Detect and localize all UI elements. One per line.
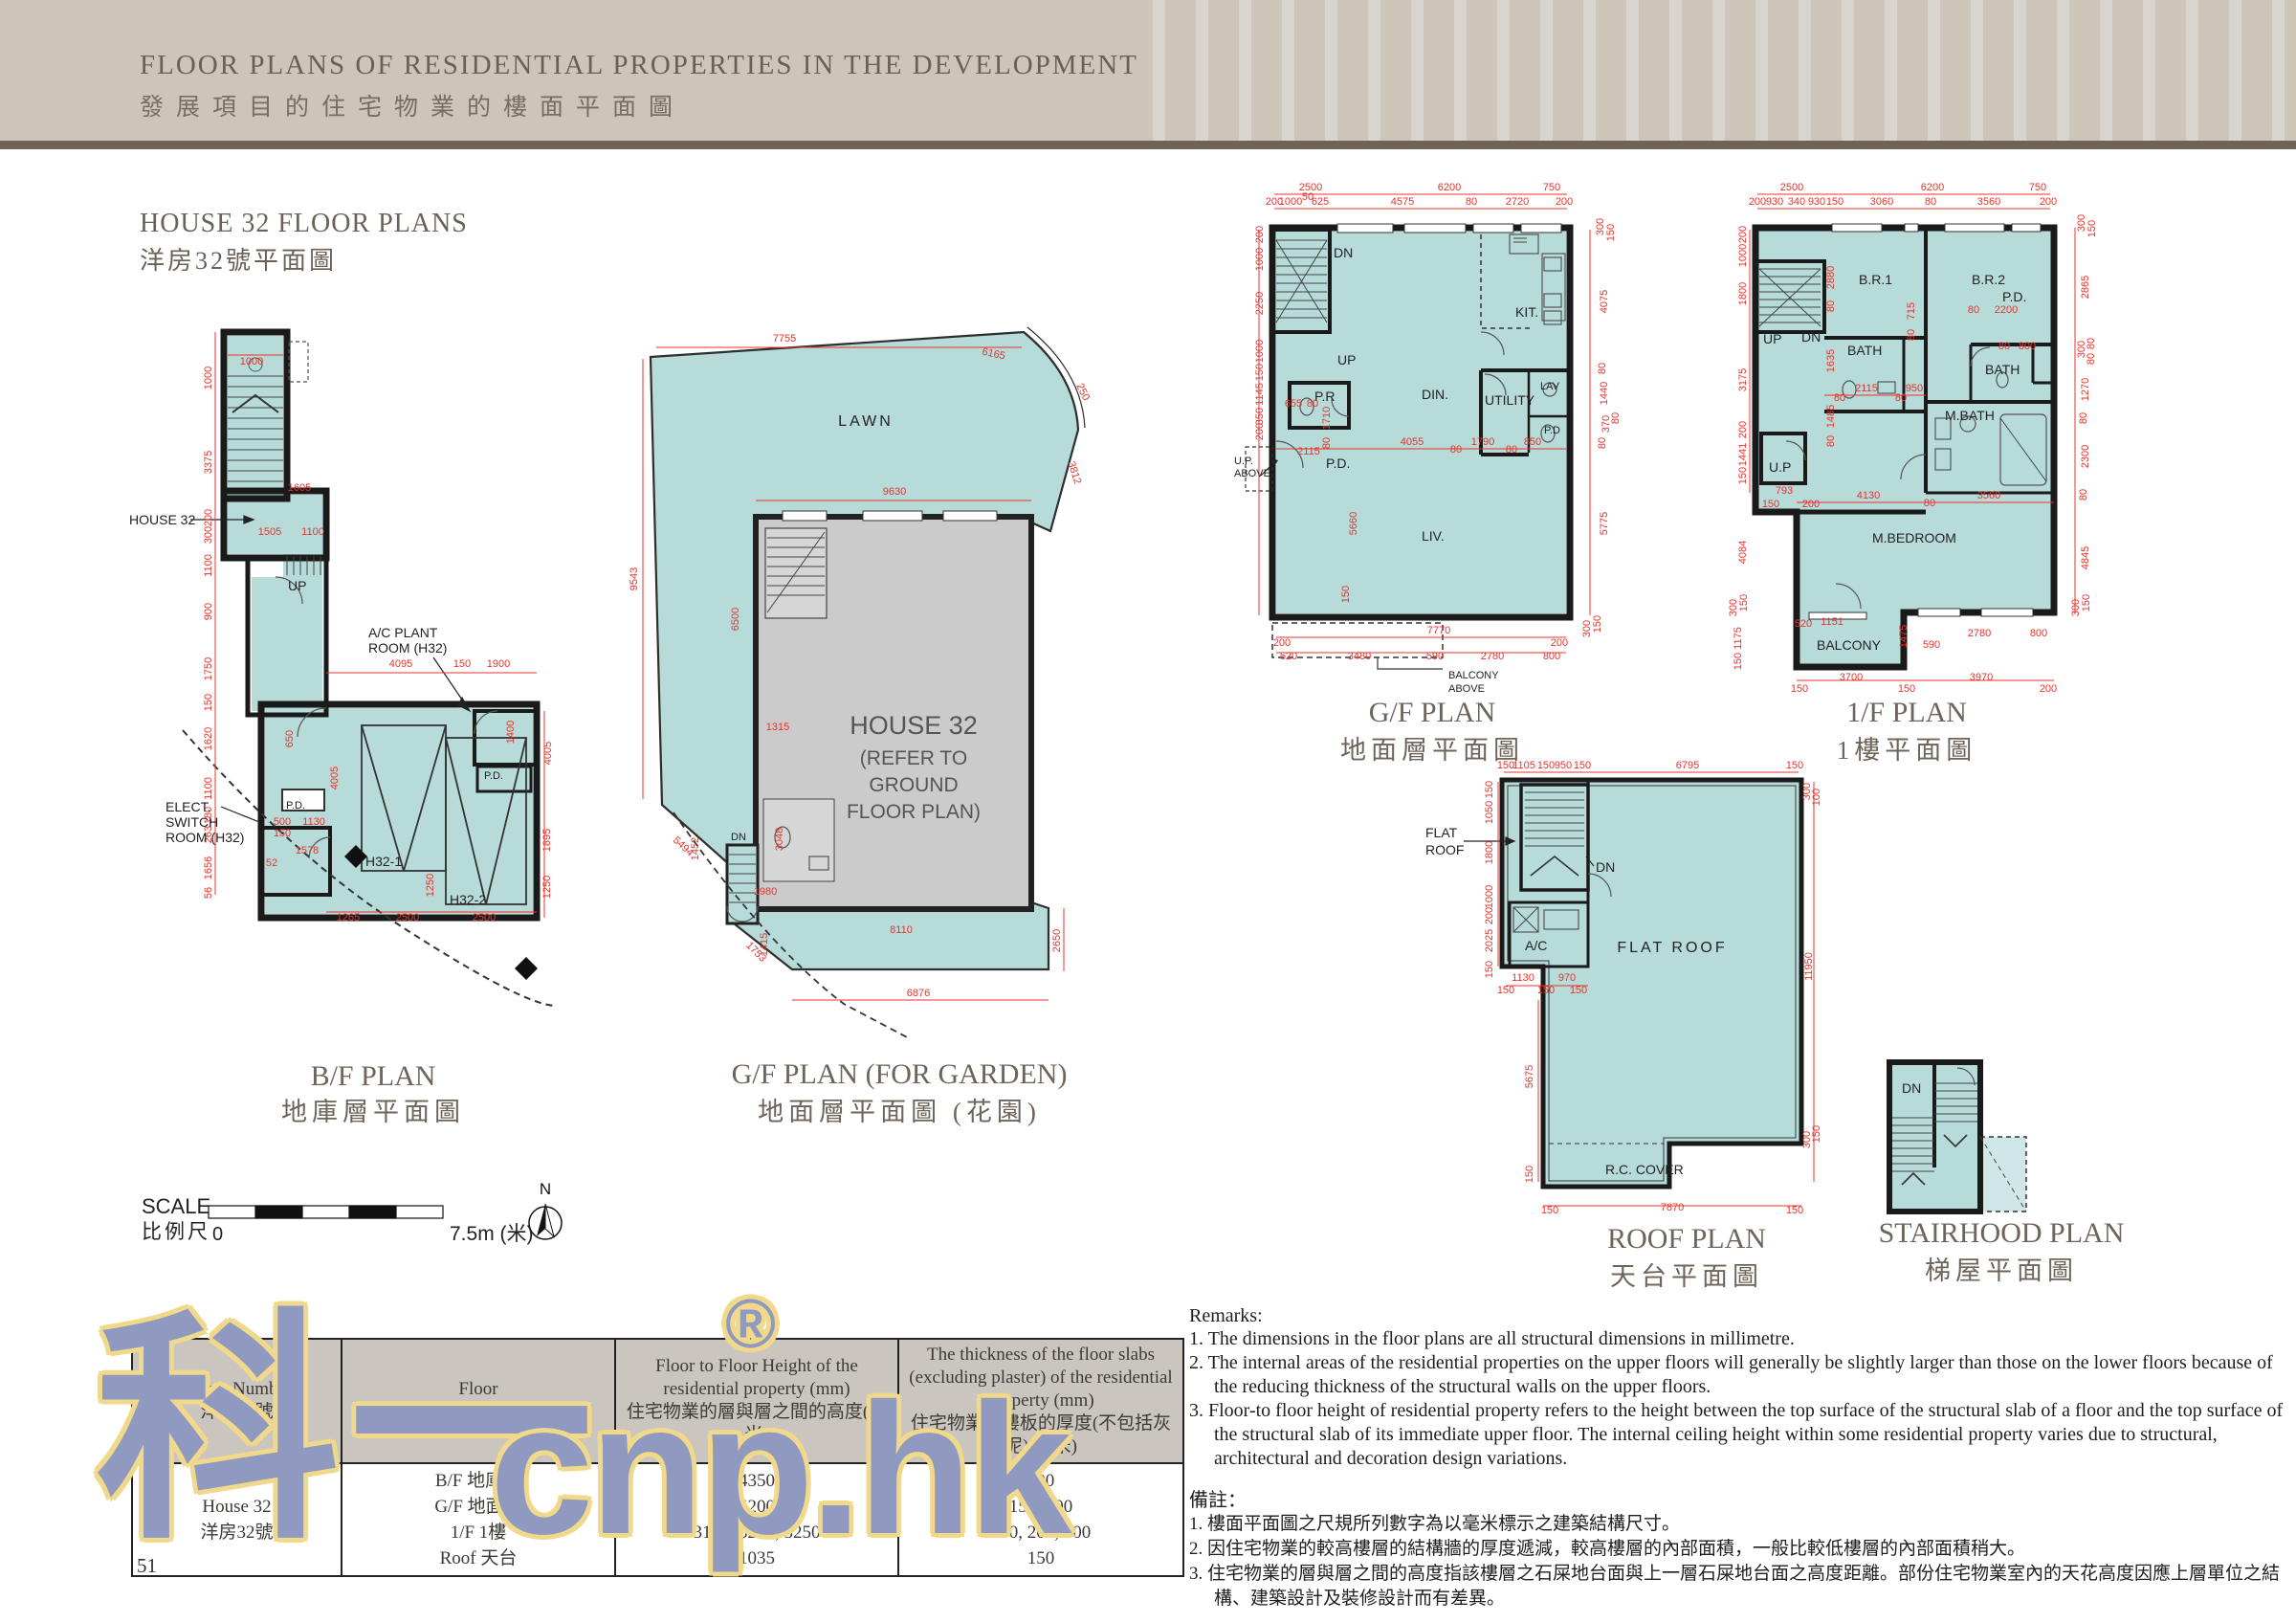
plan-label: 1635 bbox=[1825, 349, 1837, 372]
plan-label: 80 bbox=[1834, 392, 1845, 404]
cell-floors: B/F 地庫層G/F 地面層 1/F 1樓Roof 天台 bbox=[342, 1463, 615, 1576]
plan-label: 2880 bbox=[1825, 266, 1837, 289]
gf-garden-plan-figure: LAWNHOUSE 32(REFER TOGROUNDFLOOR PLAN)DN… bbox=[622, 301, 1100, 1124]
plan-label: 80 bbox=[1610, 412, 1622, 424]
plan-label: 80 bbox=[2078, 489, 2089, 500]
plan-label: UP bbox=[1763, 331, 1781, 346]
plan-label: 1750 bbox=[203, 657, 214, 680]
bf-caption-en: B/F PLAN bbox=[311, 1060, 436, 1093]
plan-label: U.P. bbox=[1234, 456, 1253, 467]
plan-label: 150 bbox=[1541, 1205, 1558, 1216]
plan-label: 6200 bbox=[1921, 182, 1944, 193]
plan-label: 4055 bbox=[1401, 436, 1424, 448]
plan-label: 3700 bbox=[1840, 672, 1863, 683]
plan-label: LAWN bbox=[838, 413, 894, 430]
plan-label: 80 bbox=[2086, 338, 2097, 349]
plan-label: 80 bbox=[1968, 304, 1979, 316]
plan-label: 1000 bbox=[1279, 196, 1302, 208]
plan-label: U.P bbox=[1769, 459, 1791, 475]
plan-label: 1100 bbox=[301, 526, 324, 538]
plan-label: 2500 bbox=[473, 912, 496, 923]
gfg-house-footprint bbox=[756, 511, 1031, 909]
remark-en-2: 2. The internal areas of the residential… bbox=[1189, 1351, 2294, 1399]
plan-label: 1475 bbox=[1898, 625, 1910, 648]
plan-label: DN bbox=[1596, 859, 1615, 875]
plan-label: B.R.2 bbox=[1972, 272, 2005, 287]
plan-label: 56 bbox=[203, 887, 214, 899]
plan-label: 150 bbox=[1497, 985, 1514, 996]
plan-label: 200 bbox=[203, 509, 214, 526]
plan-label: 2300 bbox=[2080, 445, 2091, 468]
plan-label: 80 bbox=[2078, 412, 2089, 424]
plan-label: DN bbox=[731, 832, 746, 843]
plan-label: 1900 bbox=[487, 658, 510, 670]
roof-caption-zh: 天台平面圖 bbox=[1610, 1256, 1763, 1293]
plan-label: 850 bbox=[1524, 436, 1541, 448]
plan-label: 500 bbox=[274, 816, 291, 828]
plan-label: 7755 bbox=[773, 333, 796, 345]
plan-label: 590 bbox=[1426, 651, 1444, 662]
plan-label: 150 bbox=[1537, 760, 1555, 771]
plan-label: BALCONY bbox=[1448, 670, 1499, 681]
remarks-title-zh: 備註： bbox=[1189, 1484, 2294, 1512]
plan-label: 100 bbox=[1811, 789, 1822, 806]
plan-label: 8110 bbox=[890, 924, 913, 936]
plan-label: 1505 bbox=[258, 526, 281, 538]
plan-label: 80 bbox=[1307, 398, 1318, 410]
page-number: 51 bbox=[137, 1554, 157, 1578]
plan-label: 1000 bbox=[1737, 244, 1749, 267]
plan-label: 150 bbox=[1898, 683, 1915, 695]
plan-label: 4075 bbox=[1599, 290, 1610, 313]
plan-label: 200 bbox=[1556, 196, 1573, 208]
col-floor-height: Floor to Floor Height of the residential… bbox=[615, 1339, 898, 1463]
plan-label: 150 bbox=[2081, 594, 2092, 611]
plan-label: 80 bbox=[1321, 437, 1333, 449]
plan-label: A/C bbox=[1525, 938, 1547, 953]
plan-label: 9630 bbox=[883, 486, 906, 498]
plan-label: 3060 bbox=[1870, 196, 1893, 208]
plan-label: P.D. bbox=[484, 770, 503, 782]
plan-label: 150 bbox=[1786, 1205, 1803, 1216]
plan-label: 3480 bbox=[1348, 651, 1371, 662]
plan-label: 1656 bbox=[203, 856, 214, 879]
plan-label: 4005 bbox=[329, 767, 341, 789]
plan-label: 1050 bbox=[1484, 801, 1495, 824]
header-divider bbox=[0, 141, 2296, 149]
plan-label: ROOM (H32) bbox=[368, 640, 447, 656]
plan-label: 2025 bbox=[1484, 929, 1495, 952]
page-title-zh: 發展項目的住宅物業的樓面平面圖 bbox=[140, 88, 685, 122]
plan-label: 3812 bbox=[1065, 460, 1083, 486]
plan-label: 1710 bbox=[1321, 407, 1333, 430]
plan-label: 2865 bbox=[2080, 276, 2091, 299]
plan-label: 80 bbox=[2086, 353, 2097, 365]
plan-label: 150 bbox=[1574, 760, 1591, 771]
plan-label: 1441 bbox=[1737, 443, 1749, 466]
plan-label: 3048 bbox=[774, 828, 785, 851]
plan-label: 800 bbox=[2019, 341, 2036, 352]
plan-label: 150 bbox=[203, 694, 214, 711]
table-header-row: House Number洋房編號 Floor樓層 Floor to Floor … bbox=[132, 1339, 1183, 1463]
plan-label: 625 bbox=[1312, 196, 1329, 208]
plan-label: 1415 bbox=[759, 933, 770, 956]
plan-label: 7770 bbox=[1427, 625, 1450, 636]
plan-label: 80 bbox=[1998, 341, 2010, 352]
plan-label: 80 bbox=[1466, 196, 1477, 208]
stairhood-caption-zh: 梯屋平面圖 bbox=[1925, 1250, 2078, 1287]
first-floor-plan-figure: 2500620075020093034093015030608035602002… bbox=[1717, 177, 2138, 761]
plan-label: 930 bbox=[1808, 196, 1825, 208]
plan-label: BALCONY bbox=[1817, 637, 1882, 653]
plan-label: P.D bbox=[1544, 425, 1560, 436]
plan-label: 4845 bbox=[2080, 546, 2091, 569]
plan-label: ELECT. bbox=[166, 799, 210, 814]
plan-label: 80 bbox=[1825, 300, 1837, 312]
f1-caption-en: 1/F PLAN bbox=[1846, 697, 1967, 729]
plan-label: 150 bbox=[1762, 499, 1779, 510]
plan-label: 520 bbox=[1795, 618, 1812, 630]
scale-max: 7.5m (米) bbox=[450, 1223, 534, 1245]
plan-label: 150 bbox=[1791, 683, 1808, 695]
plan-label: P.D. bbox=[2002, 289, 2026, 304]
plan-label: 2650 bbox=[1051, 929, 1063, 952]
scale-label-en: SCALE bbox=[142, 1194, 210, 1218]
remark-en-1: 1. The dimensions in the floor plans are… bbox=[1189, 1327, 2294, 1351]
plan-label: 1980 bbox=[754, 886, 777, 898]
scale-zero: 0 bbox=[212, 1224, 223, 1245]
plan-label: 9543 bbox=[629, 567, 640, 590]
plan-label: 2500 bbox=[1780, 182, 1803, 193]
plan-label: 200 bbox=[2040, 683, 2057, 695]
gfg-stair-annex bbox=[727, 845, 758, 923]
plan-label: 6876 bbox=[907, 988, 930, 999]
plan-label: HOUSE 32 bbox=[129, 512, 195, 527]
plan-label: ABOVE bbox=[1234, 468, 1270, 479]
plan-label: 340 bbox=[1788, 196, 1805, 208]
plan-label: 1250 bbox=[425, 874, 436, 897]
plan-label: 150 bbox=[1484, 961, 1495, 978]
plan-label: 5675 bbox=[1524, 1065, 1535, 1088]
plan-label: 200 bbox=[1749, 196, 1766, 208]
plan-label: UP bbox=[288, 578, 306, 593]
plan-label: 800 bbox=[2030, 628, 2047, 639]
plan-label: 1000 bbox=[1484, 885, 1495, 908]
plan-label: H32-2 bbox=[450, 892, 486, 907]
plan-label: 2720 bbox=[1506, 196, 1529, 208]
plan-label: 1895 bbox=[541, 829, 553, 852]
plan-label: 1100 bbox=[203, 777, 214, 800]
plan-label: 1315 bbox=[766, 722, 789, 733]
plan-label: FLOOR PLAN) bbox=[847, 801, 981, 823]
plan-label: 4005 bbox=[542, 742, 554, 765]
plan-label: 150 bbox=[1786, 760, 1803, 771]
plan-label: FLAT bbox=[1425, 825, 1458, 840]
plan-label: 150 bbox=[1811, 1125, 1822, 1143]
plan-label: 3560 bbox=[1977, 490, 2000, 501]
plan-label: 150 bbox=[453, 658, 471, 670]
plan-label: 2500 bbox=[396, 912, 419, 923]
bf-caption-zh: 地庫層平面圖 bbox=[281, 1091, 465, 1128]
plan-label: 1105 bbox=[1512, 760, 1535, 771]
remark-en-3: 3. Floor-to floor height of residential … bbox=[1189, 1399, 2294, 1471]
plan-label: 1265 bbox=[337, 912, 360, 923]
scale-bar-segments bbox=[209, 1206, 443, 1218]
plan-label: 150 bbox=[1733, 653, 1744, 670]
plan-label: 150 bbox=[1537, 985, 1555, 996]
remark-zh-2: 2. 因住宅物業的較高樓層的結構牆的厚度遞減，較高樓層的內部面積，一般比較低樓層… bbox=[1189, 1537, 2294, 1562]
plan-label: UP bbox=[1337, 352, 1356, 367]
plan-label: 200 bbox=[1802, 499, 1820, 510]
plan-label: 11950 bbox=[1803, 952, 1815, 981]
brochure-page: { "header": { "title_en": "FLOOR PLANS O… bbox=[0, 0, 2296, 1623]
plan-label: 150 bbox=[1484, 781, 1495, 798]
plan-label: LIV. bbox=[1422, 528, 1445, 544]
plan-label: 590 bbox=[1923, 639, 1940, 651]
plan-label: DN bbox=[1902, 1080, 1921, 1096]
floor-height-table: House Number洋房編號 Floor樓層 Floor to Floor … bbox=[131, 1338, 1184, 1577]
plan-label: P.D. bbox=[1326, 456, 1350, 471]
plan-label: 80 bbox=[1597, 363, 1608, 374]
plan-label: 1605 bbox=[288, 482, 311, 494]
plan-label: 750 bbox=[2029, 182, 2046, 193]
plan-label: 150 bbox=[1592, 615, 1603, 633]
cell-thickness: 200150, 200 150, 200, 300150 bbox=[898, 1463, 1183, 1576]
plan-label: 800 bbox=[1543, 651, 1560, 662]
plan-label: 200 bbox=[1484, 907, 1495, 924]
plan-label: BATH bbox=[1985, 362, 2020, 377]
plan-label: 4084 bbox=[1737, 541, 1749, 564]
plan-label: 1452 bbox=[690, 837, 701, 860]
plan-label: 1250 bbox=[541, 876, 553, 899]
plan-label: 200 bbox=[1254, 423, 1266, 440]
col-house-number: House Number洋房編號 bbox=[132, 1339, 342, 1463]
plan-label: R.C. COVER bbox=[1605, 1162, 1684, 1177]
plan-label: ROOM (H32) bbox=[166, 830, 244, 845]
plan-label: P.D. bbox=[286, 800, 305, 811]
plan-label: B.R.1 bbox=[1859, 272, 1892, 287]
f1-caption-zh: 1樓平面圖 bbox=[1837, 729, 1977, 767]
plan-label: 1175 bbox=[1733, 627, 1744, 650]
header-stripe-pattern bbox=[1153, 0, 2296, 141]
table-row: House 32洋房32號 B/F 地庫層G/F 地面層 1/F 1樓Roof … bbox=[132, 1463, 1183, 1576]
plan-label: 80 bbox=[1506, 444, 1517, 456]
remarks-block: Remarks: 1. The dimensions in the floor … bbox=[1189, 1305, 2294, 1612]
plan-label: M.BEDROOM bbox=[1872, 530, 1956, 545]
plan-label: 7870 bbox=[1661, 1202, 1684, 1213]
plan-label: 1620 bbox=[203, 727, 214, 750]
plan-label: 80 bbox=[1450, 444, 1462, 456]
page-title-en: FLOOR PLANS OF RESIDENTIAL PROPERTIES IN… bbox=[140, 50, 1138, 81]
plan-label: 1000 bbox=[1254, 340, 1266, 363]
remark-zh-1: 1. 樓面平面圖之尺規所列數字為以毫米標示之建築結構尺寸。 bbox=[1189, 1512, 2294, 1537]
roof-floor-area bbox=[1502, 780, 1801, 1187]
plan-label: M.BATH bbox=[1945, 408, 1995, 423]
page-header: FLOOR PLANS OF RESIDENTIAL PROPERTIES IN… bbox=[0, 0, 2296, 141]
plan-label: 150 bbox=[1826, 196, 1843, 208]
stairhood-caption-en: STAIRHOOD PLAN bbox=[1879, 1217, 2125, 1250]
plan-label: 150 bbox=[1605, 224, 1617, 241]
plan-label: 200 bbox=[1737, 421, 1749, 438]
plan-label: ROOF bbox=[1425, 842, 1464, 857]
plan-label: 150 bbox=[1340, 586, 1352, 603]
plan-label: H32-1 bbox=[365, 854, 402, 869]
plan-label: 930 bbox=[1766, 196, 1783, 208]
plan-label: 3375 bbox=[203, 451, 214, 474]
plan-label: FLAT ROOF bbox=[1617, 940, 1727, 956]
plan-label: LAV bbox=[1540, 381, 1560, 392]
plan-label: 2250 bbox=[1254, 292, 1266, 315]
plan-label: 80 bbox=[1597, 437, 1608, 449]
scale-bar: SCALE 比例尺 0 7.5m (米) N bbox=[134, 1179, 593, 1284]
plan-label: A/C PLANT bbox=[368, 625, 438, 640]
plan-label: 4095 bbox=[389, 658, 412, 670]
plan-label: 750 bbox=[1543, 182, 1560, 193]
plan-label: 80 bbox=[1925, 196, 1936, 208]
plan-label: 200 bbox=[1273, 637, 1291, 649]
plan-label: 655 bbox=[1285, 398, 1302, 410]
section-title-zh: 洋房32號平面圖 bbox=[140, 241, 337, 277]
col-floor: Floor樓層 bbox=[342, 1339, 615, 1463]
section-title-en: HOUSE 32 FLOOR PLANS bbox=[140, 209, 468, 239]
plan-label: UTILITY bbox=[1485, 392, 1535, 408]
plan-label: 300 bbox=[203, 526, 214, 544]
plan-label: 2780 bbox=[1968, 628, 1991, 639]
plan-label: 5660 bbox=[1348, 512, 1359, 535]
plan-label: 1440 bbox=[1599, 382, 1610, 405]
plan-label: 900 bbox=[203, 603, 214, 620]
plan-label: 350 bbox=[1254, 408, 1266, 425]
plan-label: ABOVE bbox=[1448, 683, 1485, 695]
plan-label: 1800 bbox=[1737, 282, 1749, 305]
plan-label: 150 bbox=[2086, 220, 2098, 237]
plan-label: 200 bbox=[1551, 637, 1568, 649]
plan-label: 1145 bbox=[1254, 383, 1266, 406]
plan-label: 1130 bbox=[1512, 972, 1534, 984]
stairhood-plan-figure: DN bbox=[1865, 1051, 2152, 1242]
plan-label: 2780 bbox=[1481, 651, 1504, 662]
gf-caption-en: G/F PLAN bbox=[1369, 697, 1496, 729]
plan-label: 52 bbox=[266, 857, 277, 869]
plan-label: 715 bbox=[1906, 302, 1917, 320]
gfg-caption-en: G/F PLAN (FOR GARDEN) bbox=[732, 1058, 1068, 1091]
bf-plan-figure: 1000100033752003001100900175015016201100… bbox=[129, 321, 569, 1124]
gfg-caption-zh: 地面層平面圖 (花園) bbox=[758, 1091, 1041, 1128]
plan-label: 3560 bbox=[1977, 196, 2000, 208]
plan-label: 650 bbox=[284, 730, 296, 747]
plan-label: 5775 bbox=[1599, 512, 1610, 535]
plan-label: 3970 bbox=[1970, 672, 1993, 683]
plan-label: 793 bbox=[1776, 485, 1793, 497]
plan-label: SWITCH bbox=[166, 814, 218, 830]
cell-house: House 32洋房32號 bbox=[132, 1463, 342, 1576]
plan-label: 150 bbox=[274, 828, 291, 839]
plan-label: DIN. bbox=[1422, 387, 1448, 402]
plan-label: 950 bbox=[1906, 383, 1923, 394]
plan-label: 200 bbox=[2040, 196, 2057, 208]
plan-label: 1000 bbox=[1254, 248, 1266, 271]
plan-label: 1800 bbox=[1484, 841, 1495, 864]
plan-label: 950 bbox=[1555, 760, 1572, 771]
roof-caption-en: ROOF PLAN bbox=[1607, 1223, 1766, 1256]
plan-label: 150 bbox=[1254, 364, 1266, 381]
plan-label: 250 bbox=[1073, 382, 1092, 403]
gf-windows bbox=[1337, 224, 1561, 233]
plan-label: 1151 bbox=[1821, 616, 1843, 628]
plan-label: 6200 bbox=[1438, 182, 1461, 193]
plan-label: 1485 bbox=[1825, 405, 1837, 428]
plan-label: 150 bbox=[1737, 467, 1749, 484]
plan-label: 2115 bbox=[1855, 383, 1878, 394]
plan-label: 150 bbox=[1570, 985, 1587, 996]
plan-label: KIT. bbox=[1515, 304, 1538, 320]
plan-label: 1790 bbox=[1471, 436, 1494, 448]
plan-label: 80 bbox=[1825, 435, 1837, 447]
plan-label: (REFER TO bbox=[860, 747, 967, 769]
svg-text:N: N bbox=[540, 1180, 551, 1198]
plan-label: 6795 bbox=[1676, 760, 1699, 771]
plan-label: 200 bbox=[1737, 226, 1749, 243]
plan-label: 80 bbox=[1924, 498, 1935, 509]
plan-label: 520 bbox=[1280, 651, 1297, 662]
plan-label: 4130 bbox=[1857, 490, 1880, 501]
gf-floor-area bbox=[1276, 232, 1566, 613]
plan-label: 1000 bbox=[203, 367, 214, 389]
plan-label: DN bbox=[1801, 329, 1821, 345]
remark-zh-3: 3. 住宅物業的層與層之間的高度指該樓層之石屎地台面與上一層石屎地台面之高度距離… bbox=[1189, 1562, 2294, 1612]
plan-label: BATH bbox=[1847, 343, 1882, 358]
plan-label: 2115 bbox=[1297, 446, 1320, 457]
plan-label: 1578 bbox=[296, 845, 319, 856]
plan-label: 1270 bbox=[2080, 378, 2091, 401]
plan-label: 1000 bbox=[240, 356, 263, 367]
plan-label: 1130 bbox=[302, 816, 325, 828]
plan-label: 3175 bbox=[1737, 368, 1749, 391]
north-arrow-icon: N bbox=[529, 1180, 562, 1239]
plan-label: 2200 bbox=[1995, 304, 2018, 316]
plan-label: 80 bbox=[1906, 329, 1917, 341]
plan-label: 6500 bbox=[730, 608, 741, 631]
plan-label: 1100 bbox=[203, 554, 214, 577]
cell-heights: 43504200 3150, 3200, 32501035 bbox=[615, 1463, 898, 1576]
plan-label: 970 bbox=[1558, 972, 1576, 984]
plan-label: 200 bbox=[1254, 226, 1266, 243]
plan-label: GROUND bbox=[869, 774, 958, 796]
plan-label: 150 bbox=[1524, 1166, 1535, 1183]
plan-label: 4575 bbox=[1391, 196, 1414, 208]
plan-label: 1400 bbox=[505, 721, 517, 744]
plan-label: 150 bbox=[1738, 594, 1750, 611]
plan-label: HOUSE 32 bbox=[850, 711, 978, 740]
plan-label: 80 bbox=[1895, 392, 1907, 404]
roof-plan-figure: 1501105150950150679515030010011950300150… bbox=[1425, 761, 1837, 1297]
remarks-title-en: Remarks: bbox=[1189, 1305, 2294, 1327]
col-slab-thickness: The thickness of the floor slabs (exclud… bbox=[898, 1339, 1183, 1463]
plan-label: DN bbox=[1334, 245, 1353, 260]
scale-label-zh: 比例尺 bbox=[142, 1221, 210, 1243]
gf-plan-figure: 2500620075020010005062545758027202002001… bbox=[1234, 177, 1645, 751]
